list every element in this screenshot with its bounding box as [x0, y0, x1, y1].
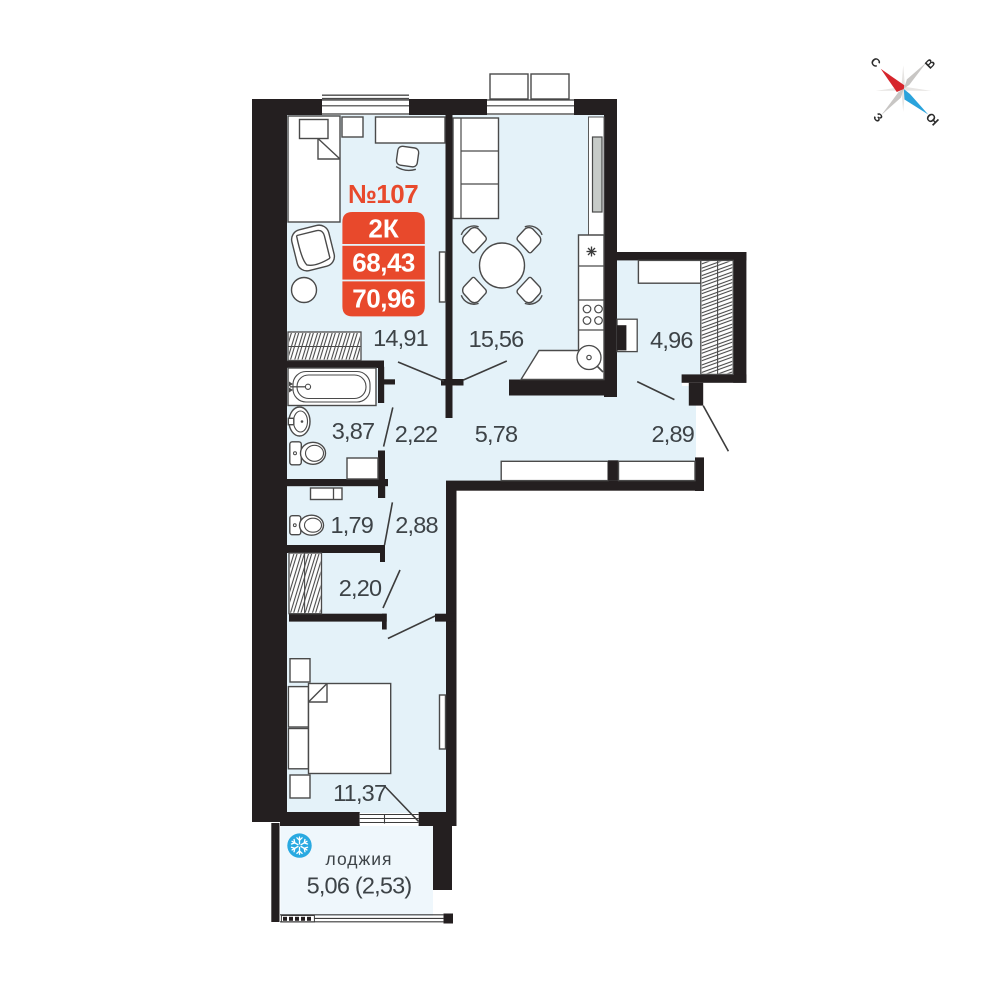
svg-text:14,91: 14,91 [373, 325, 428, 351]
svg-text:2,89: 2,89 [652, 421, 695, 447]
svg-text:2,88: 2,88 [395, 512, 438, 538]
svg-text:70,96: 70,96 [352, 284, 415, 314]
svg-text:лоджия: лоджия [326, 849, 393, 869]
svg-text:4,96: 4,96 [650, 327, 693, 353]
svg-text:5,06 (2,53): 5,06 (2,53) [307, 873, 412, 899]
svg-text:11,37: 11,37 [333, 780, 386, 806]
svg-text:68,43: 68,43 [352, 248, 415, 278]
svg-text:1,79: 1,79 [331, 512, 374, 538]
svg-text:15,56: 15,56 [469, 326, 525, 352]
svg-text:№107: №107 [348, 179, 418, 209]
svg-text:2,22: 2,22 [395, 421, 438, 447]
svg-text:2,20: 2,20 [339, 575, 382, 601]
svg-text:5,78: 5,78 [475, 421, 518, 447]
svg-text:3,87: 3,87 [332, 418, 375, 444]
svg-text:2К: 2К [368, 214, 398, 244]
